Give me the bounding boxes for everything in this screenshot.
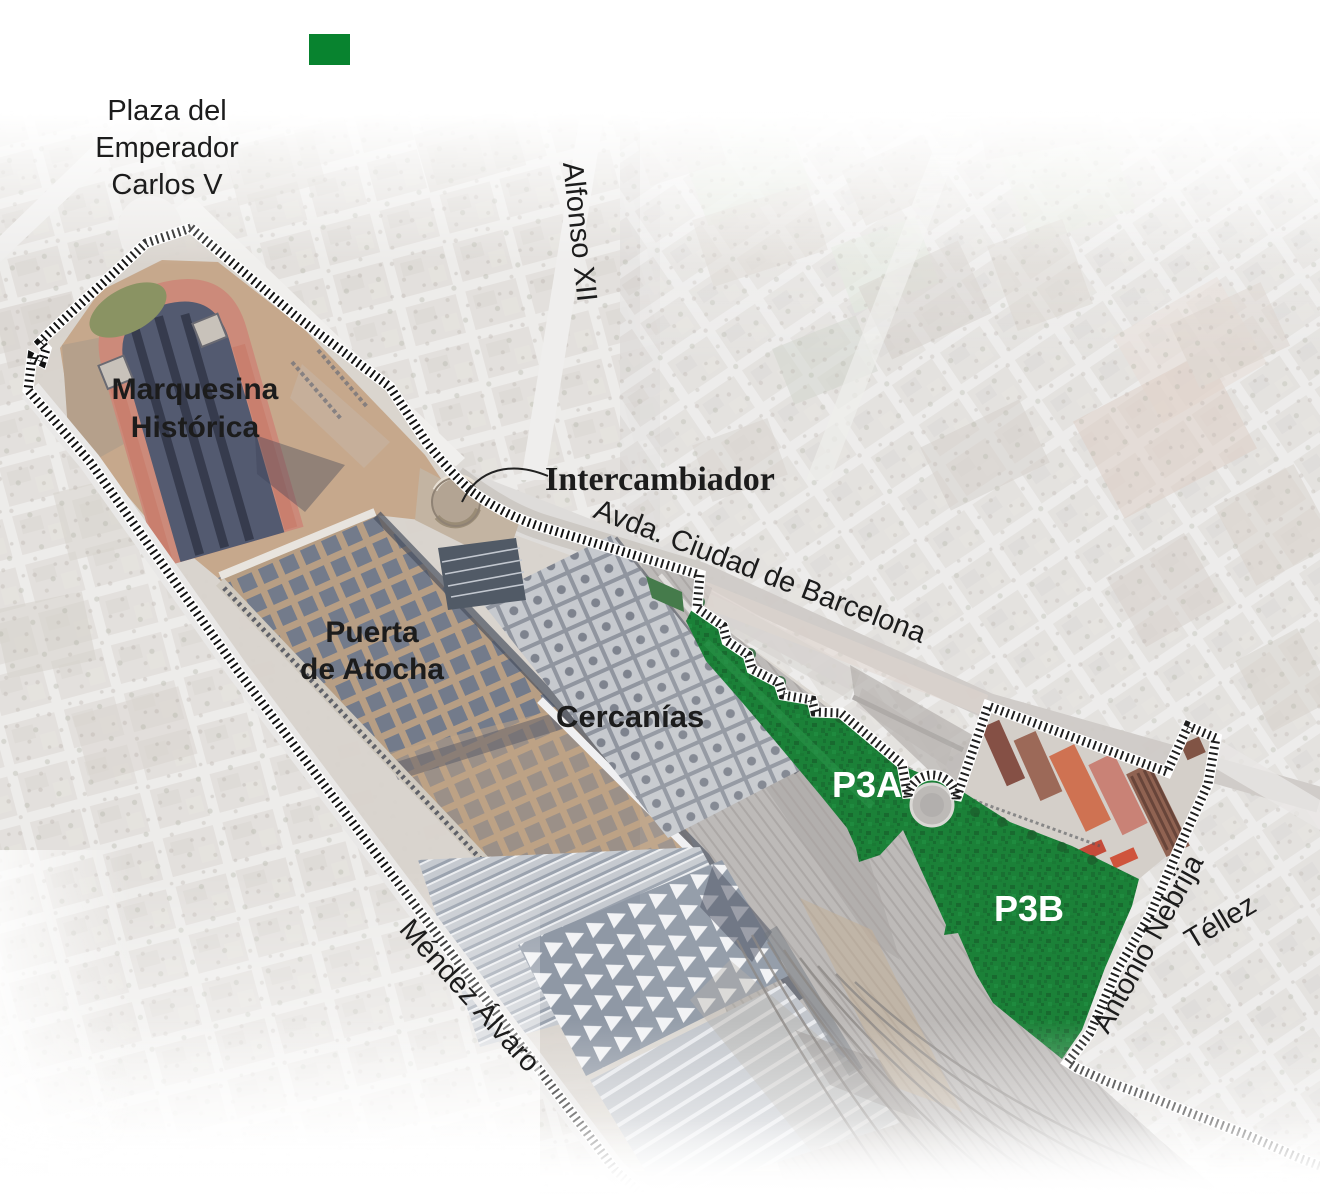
svg-text:Cercanías: Cercanías bbox=[556, 699, 704, 734]
svg-text:Emperador: Emperador bbox=[95, 132, 239, 164]
svg-text:Puerta: Puerta bbox=[325, 616, 419, 649]
svg-text:P3A: P3A bbox=[832, 764, 902, 805]
svg-text:de Atocha: de Atocha bbox=[300, 653, 444, 686]
svg-text:Histórica: Histórica bbox=[131, 411, 260, 444]
svg-text:Marquesina: Marquesina bbox=[112, 373, 279, 406]
svg-text:Intercambiador: Intercambiador bbox=[545, 461, 775, 498]
svg-text:Plaza del: Plaza del bbox=[107, 95, 226, 127]
svg-text:Carlos V: Carlos V bbox=[111, 169, 223, 201]
svg-text:P3B: P3B bbox=[994, 888, 1064, 929]
